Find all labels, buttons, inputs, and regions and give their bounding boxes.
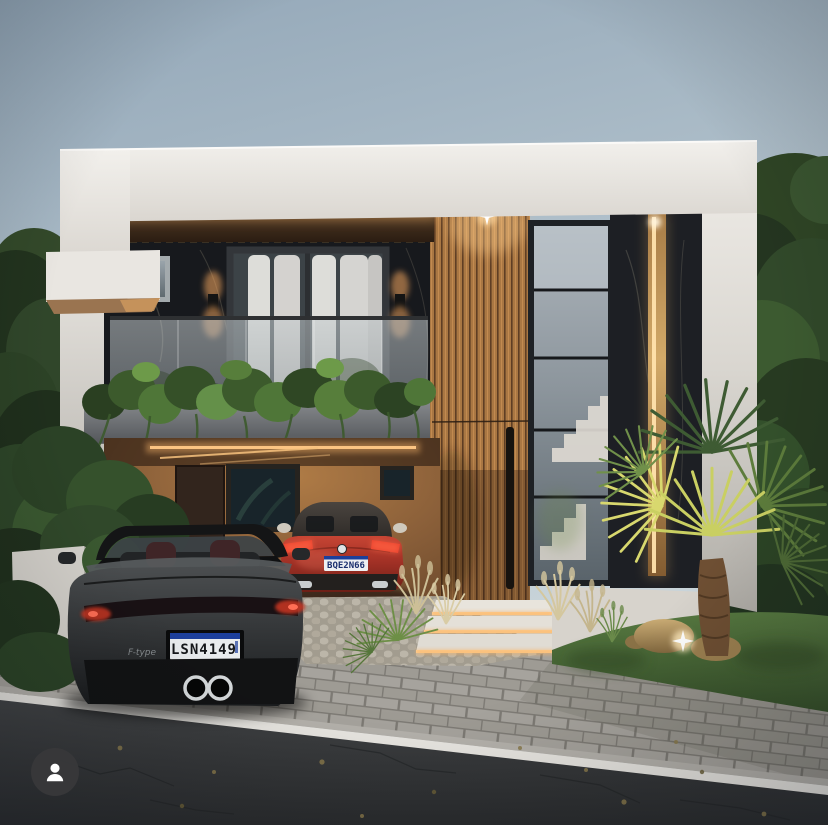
- avatar[interactable]: [31, 748, 79, 796]
- scene-svg: BQE2N66: [0, 0, 828, 825]
- house-render-image: BQE2N66: [0, 0, 828, 825]
- vignette: [0, 0, 828, 825]
- person-icon: [42, 759, 68, 785]
